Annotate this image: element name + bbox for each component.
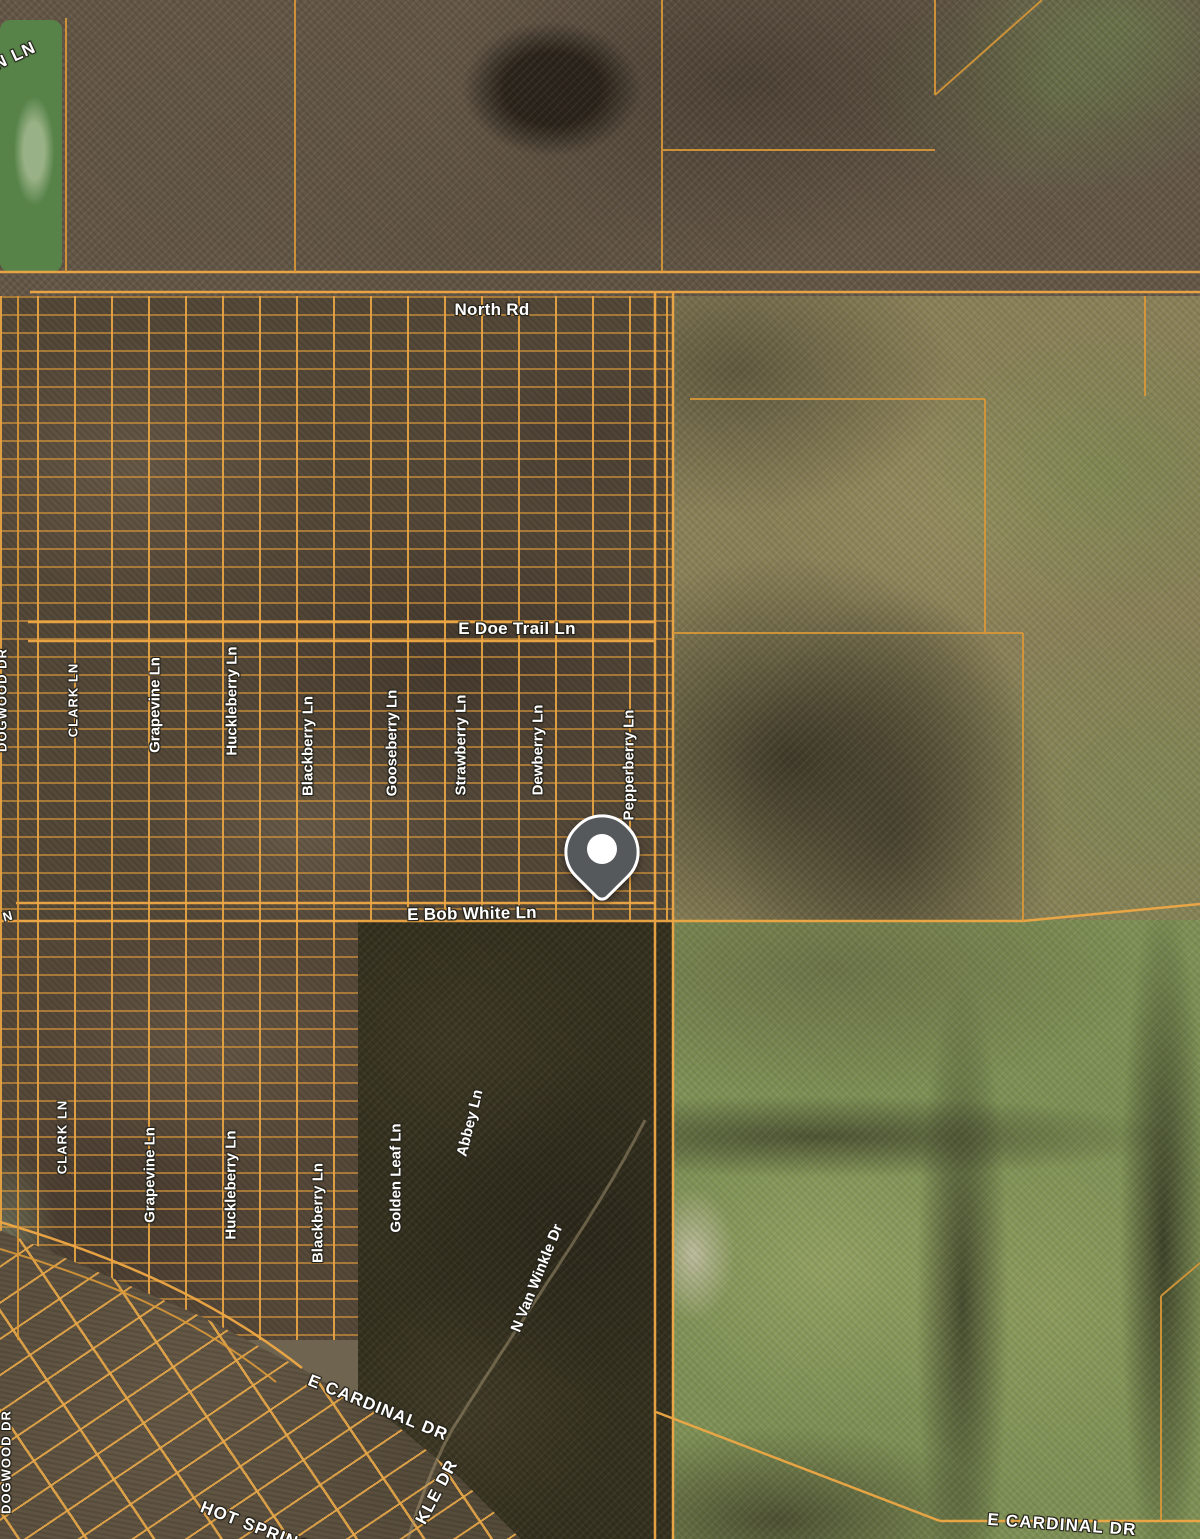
road-label-e-cardinal-dr: E CARDINAL DR bbox=[987, 1510, 1137, 1539]
road-label-gooseberry-ln: Gooseberry Ln bbox=[384, 690, 401, 797]
road-label-dewberry-ln: Dewberry Ln bbox=[530, 705, 547, 796]
road-label-kle-dr: KLE DR bbox=[412, 1456, 463, 1528]
road-label-clark-ln: CLARK LN bbox=[55, 1100, 70, 1174]
road-label-dogwood-dr: DOGWOOD DR bbox=[0, 648, 10, 752]
road-label-n-ln: N LN bbox=[0, 38, 39, 75]
pin-dot bbox=[587, 834, 617, 864]
road-label-dogwood-dr: DOGWOOD DR bbox=[0, 1410, 14, 1514]
road-label-e-bob-white-ln: E Bob White Ln bbox=[407, 903, 537, 925]
road-labels-layer: N LNNorth RdE Doe Trail LnDOGWOOD DRCLAR… bbox=[0, 0, 1200, 1539]
satellite-parcel-map[interactable]: N LNNorth RdE Doe Trail LnDOGWOOD DRCLAR… bbox=[0, 0, 1200, 1539]
road-label-hot-springs: HOT SPRINGS bbox=[198, 1497, 327, 1539]
road-label-north-rd: North Rd bbox=[454, 300, 529, 320]
road-label-blackberry-ln: Blackberry Ln bbox=[300, 696, 317, 796]
road-label-pepperberry-ln: Pepperberry Ln bbox=[621, 710, 638, 821]
road-label-abbey-ln: Abbey Ln bbox=[453, 1088, 486, 1158]
road-label-n: N bbox=[1, 907, 15, 924]
road-label-golden-leaf-ln: Golden Leaf Ln bbox=[388, 1123, 405, 1232]
road-label-grapevine-ln: Grapevine Ln bbox=[147, 657, 164, 753]
road-label-clark-ln: CLARK LN bbox=[66, 663, 81, 737]
road-label-blackberry-ln: Blackberry Ln bbox=[310, 1163, 327, 1263]
road-label-huckleberry-ln: Huckleberry Ln bbox=[224, 646, 241, 755]
road-label-huckleberry-ln: Huckleberry Ln bbox=[223, 1130, 240, 1239]
road-label-n-van-winkle-dr: N Van Winkle Dr bbox=[508, 1222, 567, 1335]
road-label-e-doe-trail-ln: E Doe Trail Ln bbox=[458, 619, 576, 639]
road-label-strawberry-ln: Strawberry Ln bbox=[453, 695, 470, 796]
road-label-grapevine-ln: Grapevine Ln bbox=[142, 1127, 159, 1223]
road-label-e-cardinal-dr: E CARDINAL DR bbox=[305, 1371, 451, 1446]
